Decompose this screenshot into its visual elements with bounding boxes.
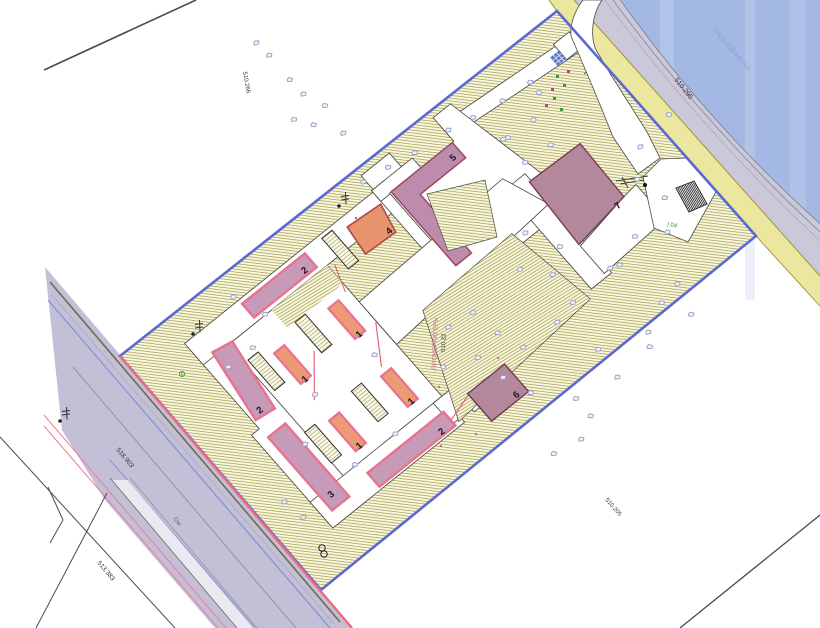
svg-text:510.22: 510.22 (441, 333, 448, 352)
